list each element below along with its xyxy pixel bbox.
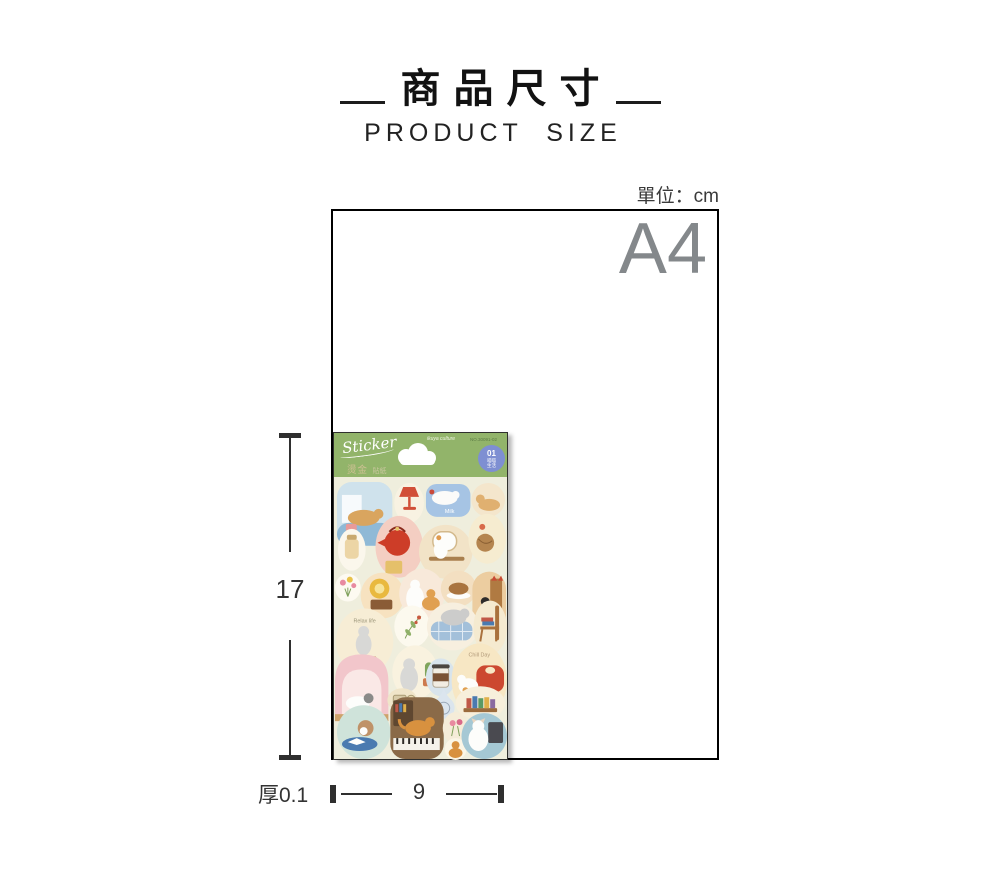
a4-size-label: A4 — [619, 213, 707, 285]
unit-label: 單位：cm — [331, 181, 719, 208]
foil-label-main: 燙金 — [347, 465, 368, 476]
title-block: 商品尺寸 — [0, 68, 1000, 110]
width-dim-line-right — [446, 793, 497, 795]
width-dim-line-left — [341, 793, 392, 795]
height-dim-line-upper — [289, 438, 291, 552]
height-dim-label: 17 — [266, 574, 314, 605]
relax-life-label: Relax life — [354, 618, 376, 624]
sheet-header: Sticker 燙金 貼紙 ikuya culture NO.30091-02 … — [334, 433, 507, 477]
sheet-body-art: Milk — [334, 477, 507, 760]
width-dim-label: 9 — [398, 779, 440, 805]
product-code: NO.30091-02 — [470, 437, 497, 442]
sticker-botanical — [394, 606, 430, 648]
title-dash-left — [340, 101, 385, 104]
product-size-page: 商品尺寸 PRODUCT SIZE 單位：cm A4 17 厚0.1 9 Sti… — [0, 0, 1000, 870]
sticker-cat-plate — [441, 571, 477, 607]
sticker-reading-cat — [337, 705, 390, 759]
page-title: 商品尺寸 — [401, 68, 613, 110]
foil-label-sub: 貼紙 — [372, 468, 386, 475]
badge-line2: 生活 — [487, 463, 496, 468]
title-dash-right — [616, 101, 661, 104]
sticker-red-kettle — [376, 516, 423, 578]
cloud-icon — [394, 442, 440, 466]
brand-name: ikuya culture — [427, 436, 455, 442]
sticker-milk-cat: Milk — [426, 484, 470, 517]
sticker-flower-bouquet — [335, 574, 361, 602]
width-dim-cap-left — [330, 785, 336, 803]
sticker-sheet-product: Sticker 燙金 貼紙 ikuya culture NO.30091-02 … — [333, 432, 508, 760]
chill-day-label: Chill Day — [468, 652, 490, 658]
sticker-tv-cat — [462, 713, 507, 759]
sticker-yarn-ball — [468, 514, 506, 564]
series-badge: 01 喵喵 生活 — [478, 445, 505, 472]
milk-label: Milk — [445, 509, 455, 515]
height-dim-line-lower — [289, 640, 291, 755]
page-subtitle: PRODUCT SIZE — [0, 119, 986, 148]
sticker-blanket-cat — [427, 603, 478, 651]
sticker-coffee-jar — [426, 658, 456, 696]
sticker-jar — [338, 529, 366, 571]
foil-label: 燙金 貼紙 — [347, 460, 386, 478]
badge-number: 01 — [487, 449, 496, 458]
width-dim-cap-right — [498, 785, 504, 803]
sticker-piano-cat — [390, 697, 443, 759]
thickness-label: 厚0.1 — [258, 779, 320, 809]
height-dim-cap-bottom — [279, 755, 301, 760]
sticker-tan-cat — [471, 483, 505, 517]
